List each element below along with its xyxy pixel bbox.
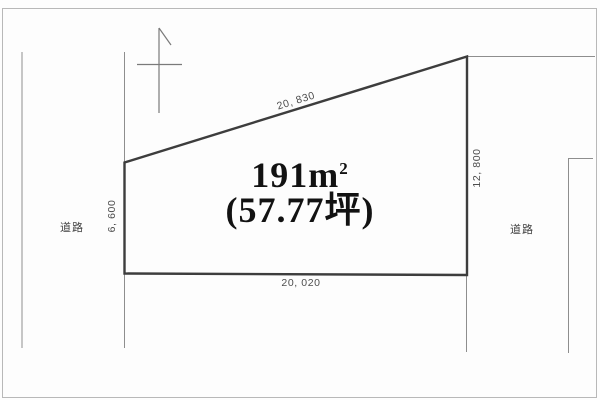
dimension-left: 6, 600 xyxy=(106,200,118,233)
dimension-bottom: 20, 020 xyxy=(281,277,320,289)
plot-area-text: 191m2 (57.77坪) xyxy=(226,158,375,228)
neighbor-parcel-boundary-line xyxy=(569,159,594,354)
road-label-right: 道路 xyxy=(510,221,534,237)
area-value: 191 xyxy=(251,155,308,195)
north-arrow-icon xyxy=(137,28,182,113)
dimension-right: 12, 800 xyxy=(471,148,483,187)
area-unit: m xyxy=(308,155,339,195)
land-survey-diagram: 20, 830 12, 800 6, 600 20, 020 道路 道路 191… xyxy=(0,0,600,400)
area-unit-exponent: 2 xyxy=(339,159,349,178)
road-label-left: 道路 xyxy=(60,219,84,235)
plot-area-tsubo: (57.77坪) xyxy=(226,193,375,228)
plot-area-square-meters: 191m2 xyxy=(226,158,375,193)
